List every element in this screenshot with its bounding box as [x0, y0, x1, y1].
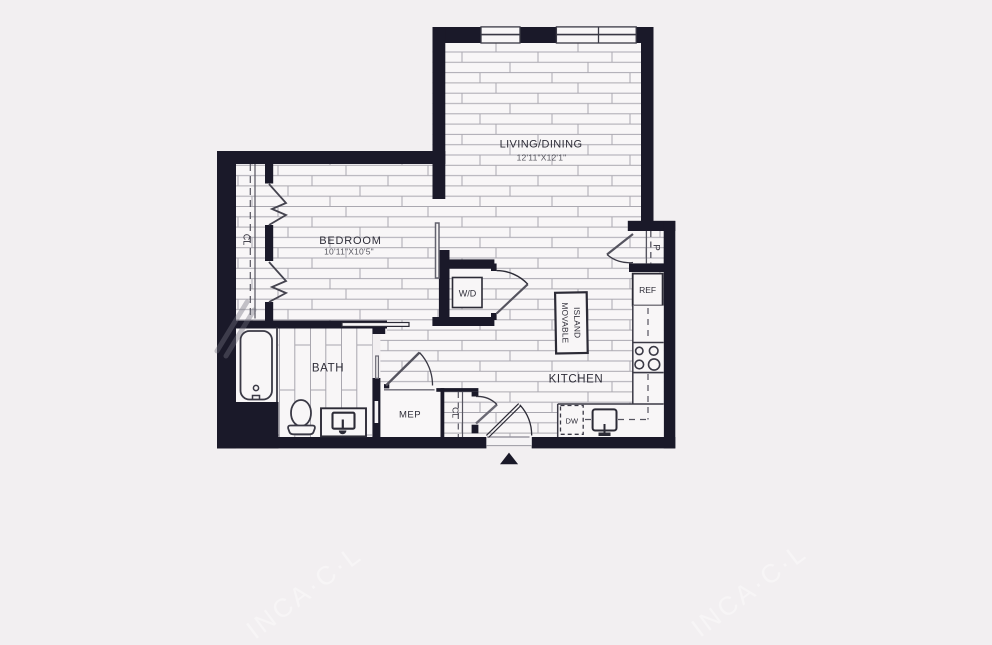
- svg-text:MOVABLE: MOVABLE: [560, 302, 571, 343]
- svg-text:W/D: W/D: [459, 289, 477, 299]
- svg-text:REF: REF: [639, 285, 656, 295]
- svg-text:BEDROOM: BEDROOM: [319, 235, 381, 247]
- svg-text:10'11"X10'5": 10'11"X10'5": [324, 247, 374, 257]
- svg-text:CL: CL: [242, 234, 252, 246]
- svg-text:ISLAND: ISLAND: [572, 307, 583, 338]
- svg-text:P: P: [651, 244, 662, 250]
- svg-text:LIVING/DINING: LIVING/DINING: [500, 139, 583, 151]
- svg-text:BATH: BATH: [312, 363, 344, 375]
- svg-text:KITCHEN: KITCHEN: [549, 374, 604, 386]
- svg-text:DW: DW: [566, 417, 579, 426]
- svg-text:12'11"X12'1": 12'11"X12'1": [517, 153, 567, 163]
- svg-text:CL: CL: [451, 407, 461, 418]
- svg-text:MEP: MEP: [399, 410, 421, 421]
